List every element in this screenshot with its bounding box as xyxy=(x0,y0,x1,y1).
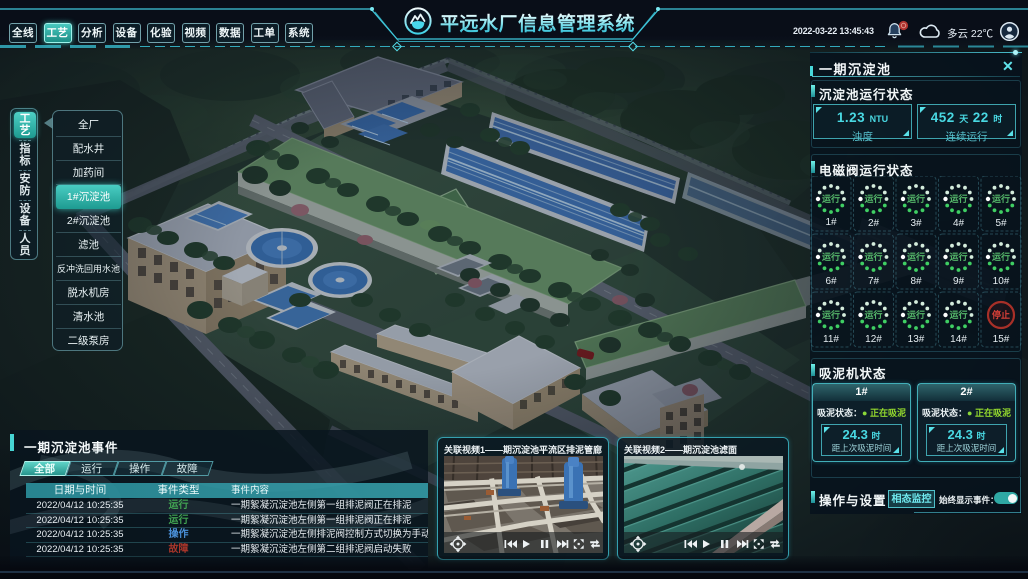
svg-text:9#: 9# xyxy=(953,276,965,287)
svg-text:8#: 8# xyxy=(910,276,922,287)
svg-text:3#: 3# xyxy=(910,218,922,229)
svg-text:2#: 2# xyxy=(868,218,880,229)
svg-text:15#: 15# xyxy=(993,334,1010,345)
svg-text:6#: 6# xyxy=(825,276,837,287)
svg-text:11#: 11# xyxy=(823,334,839,345)
svg-text:12#: 12# xyxy=(865,334,882,345)
svg-text:5#: 5# xyxy=(995,218,1007,229)
svg-text:4#: 4# xyxy=(953,218,965,229)
svg-text:14#: 14# xyxy=(950,334,967,345)
svg-text:1#: 1# xyxy=(825,217,837,228)
svg-text:10#: 10# xyxy=(993,276,1010,287)
svg-text:13#: 13# xyxy=(908,334,925,345)
svg-text:停止: 停止 xyxy=(992,309,1010,320)
svg-text:7#: 7# xyxy=(868,276,880,287)
